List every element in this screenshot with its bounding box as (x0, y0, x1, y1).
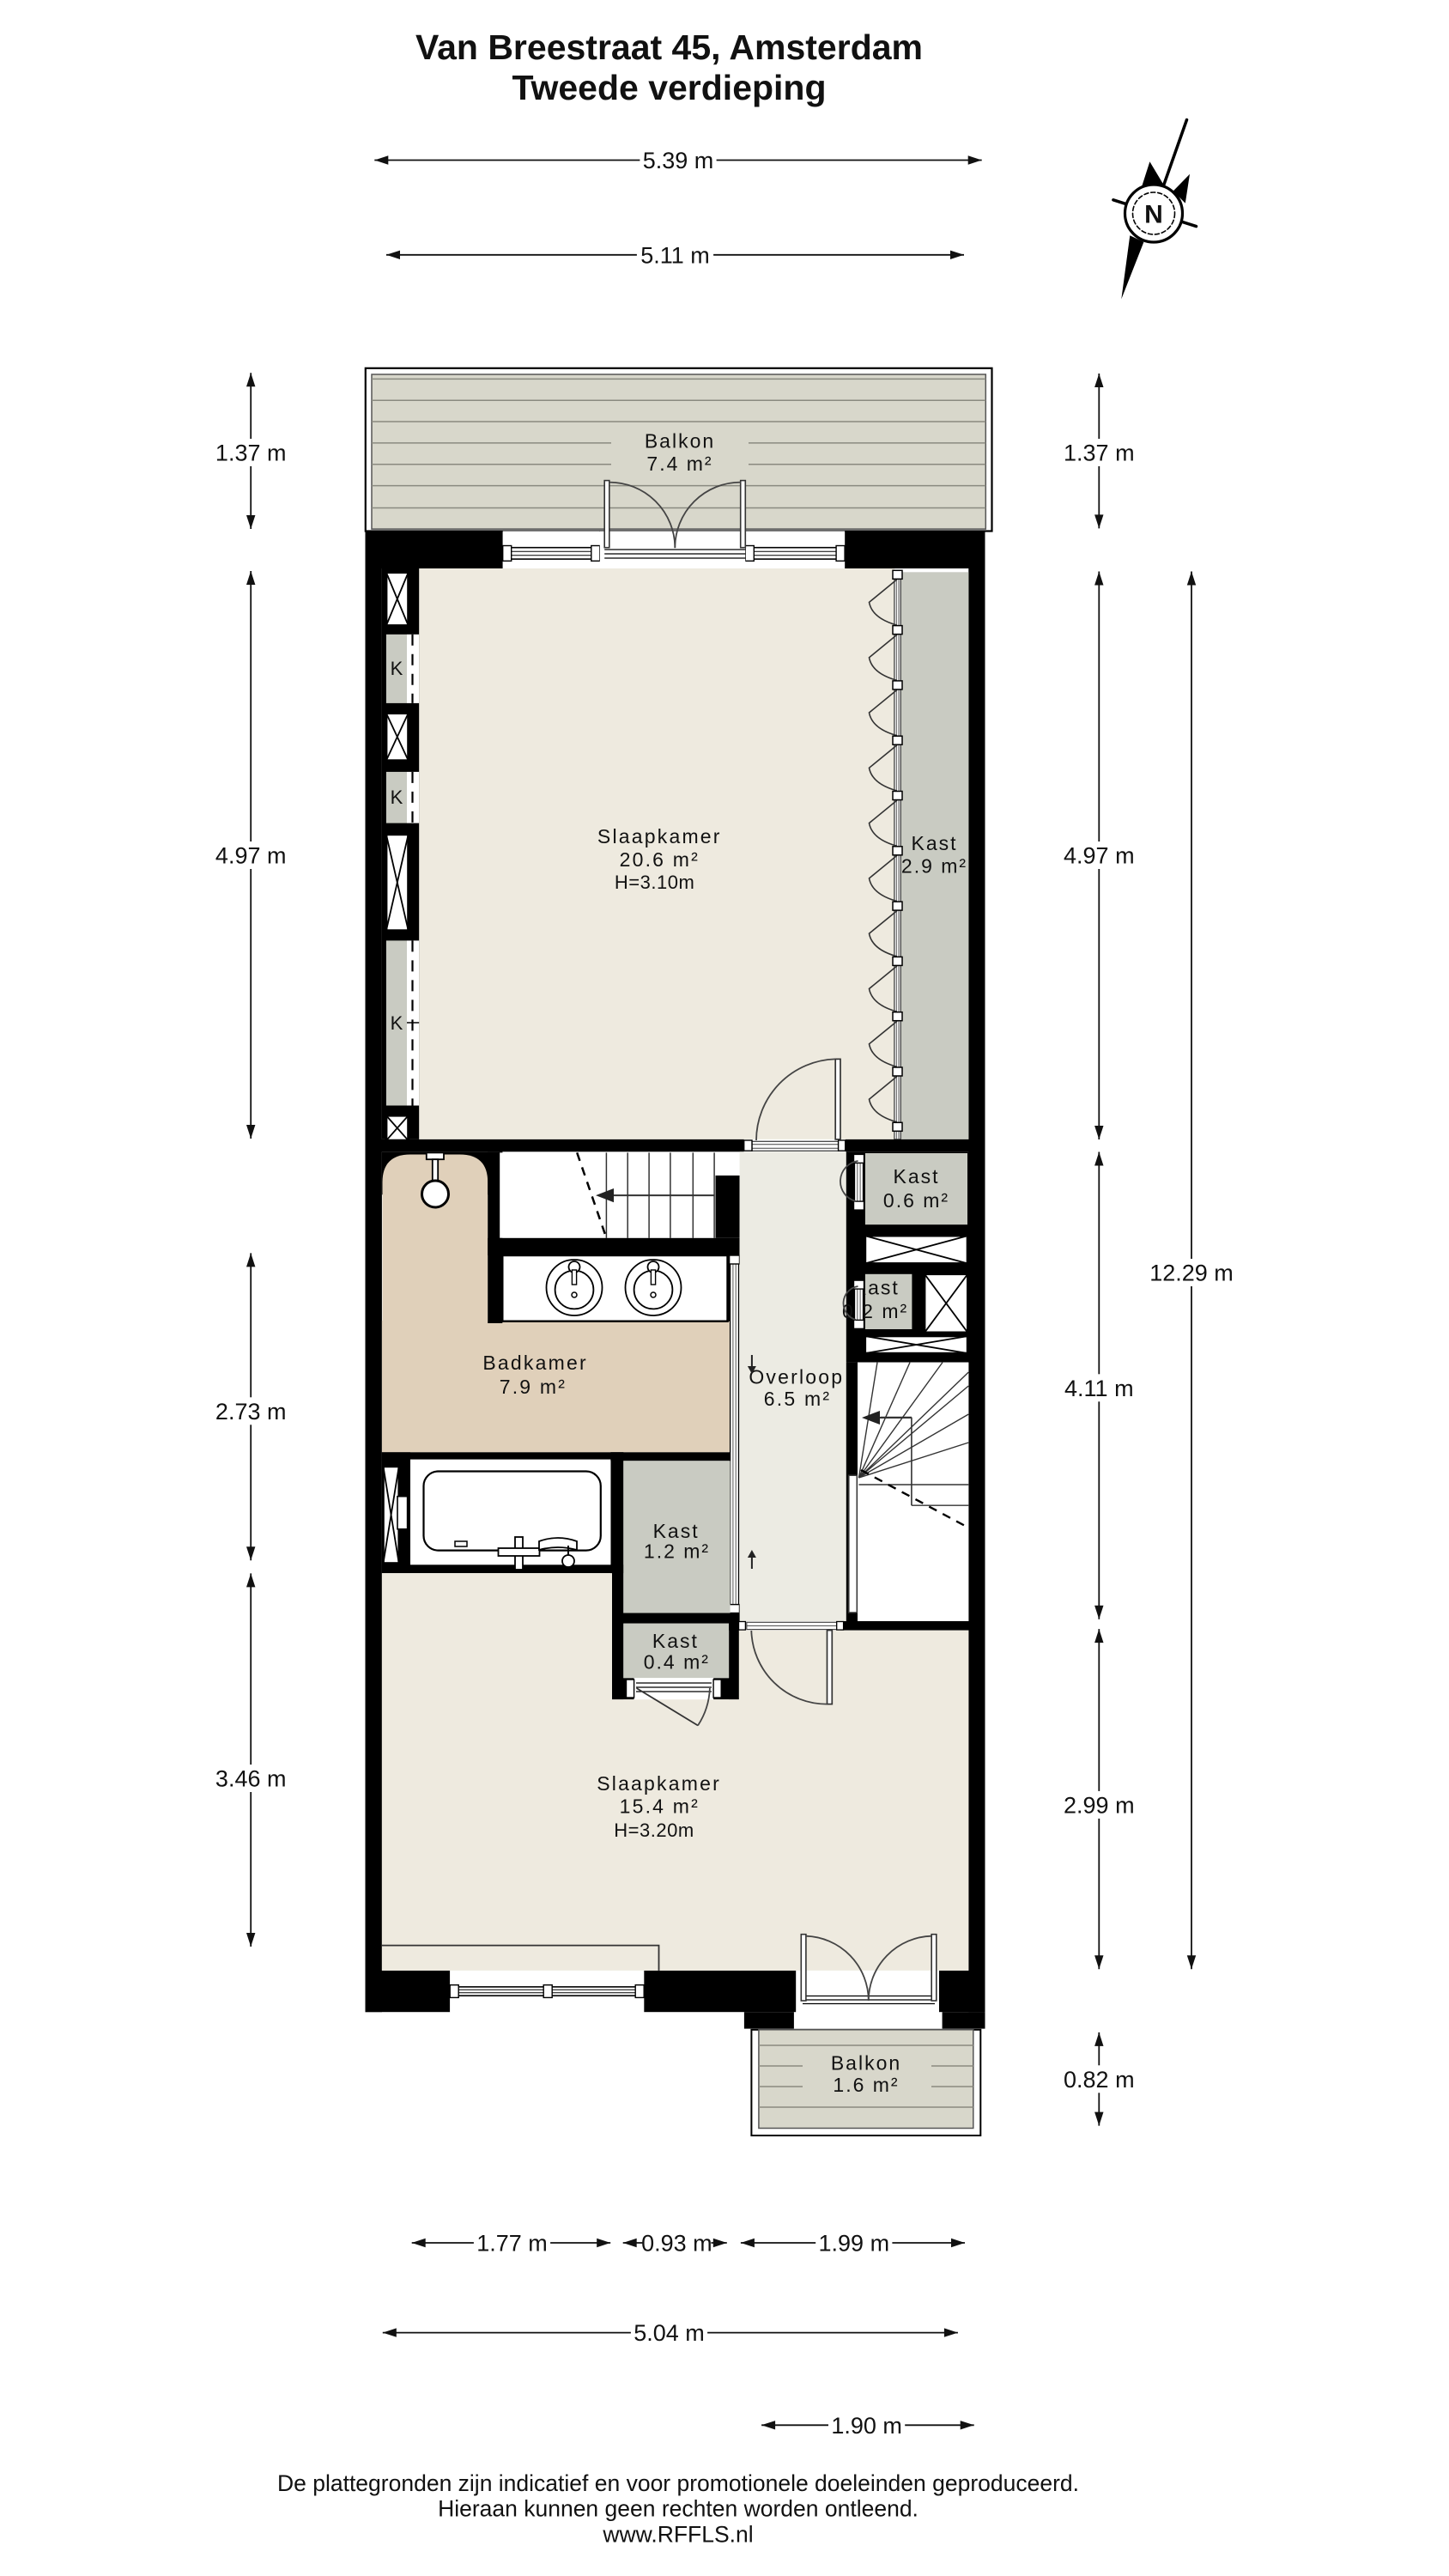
svg-text:0.82 m: 0.82 m (1064, 2067, 1135, 2093)
svg-text:Van Breestraat 45, Amsterdam: Van Breestraat 45, Amsterdam (415, 27, 923, 67)
svg-text:Kast: Kast (911, 832, 957, 854)
svg-text:Balkon: Balkon (645, 430, 715, 453)
svg-text:Tweede verdieping: Tweede verdieping (512, 68, 826, 107)
svg-text:6.5 m²: 6.5 m² (764, 1388, 831, 1410)
svg-text:5.39 m: 5.39 m (643, 148, 714, 173)
svg-text:H=3.10m: H=3.10m (615, 872, 694, 893)
svg-text:N: N (1144, 201, 1163, 229)
svg-text:Balkon: Balkon (831, 2052, 901, 2075)
svg-text:0.6 m²: 0.6 m² (883, 1189, 949, 1212)
svg-text:0.4 m²: 0.4 m² (644, 1651, 710, 1674)
svg-text:Slaapkamer: Slaapkamer (597, 1772, 721, 1795)
svg-text:Kast: Kast (652, 1630, 699, 1652)
svg-text:15.4 m²: 15.4 m² (620, 1795, 700, 1817)
svg-text:1.90 m: 1.90 m (831, 2413, 902, 2439)
svg-text:Slaapkamer: Slaapkamer (597, 825, 722, 848)
svg-text:www.RFFLS.nl: www.RFFLS.nl (602, 2521, 753, 2547)
svg-text:1.2 m²: 1.2 m² (644, 1540, 710, 1563)
svg-text:7.4 m²: 7.4 m² (646, 453, 712, 475)
svg-text:Kast: Kast (893, 1165, 939, 1188)
svg-text:Badkamer: Badkamer (482, 1352, 587, 1374)
svg-text:1.37 m: 1.37 m (1064, 440, 1135, 466)
svg-text:3.46 m: 3.46 m (215, 1766, 287, 1792)
svg-text:4.97 m: 4.97 m (1064, 843, 1135, 869)
svg-text:12.29 m: 12.29 m (1149, 1261, 1234, 1286)
svg-text:2.99 m: 2.99 m (1064, 1792, 1135, 1818)
svg-text:4.11 m: 4.11 m (1064, 1376, 1134, 1401)
svg-text:20.6 m²: 20.6 m² (620, 848, 700, 871)
svg-text:5.11 m: 5.11 m (640, 242, 710, 268)
svg-text:2.9 m²: 2.9 m² (901, 855, 967, 878)
svg-text:2.73 m: 2.73 m (215, 1399, 287, 1425)
svg-text:0.93 m: 0.93 m (641, 2231, 712, 2257)
svg-text:7.9 m²: 7.9 m² (500, 1376, 567, 1398)
svg-text:1.77 m: 1.77 m (476, 2231, 548, 2257)
svg-text:Kast: Kast (653, 1520, 700, 1542)
svg-text:K: K (391, 658, 403, 679)
svg-text:K: K (391, 787, 403, 808)
svg-text:4.97 m: 4.97 m (215, 843, 287, 869)
svg-text:H=3.20m: H=3.20m (614, 1820, 694, 1841)
svg-text:De plattegronden zijn indicati: De plattegronden zijn indicatief en voor… (277, 2470, 1079, 2496)
svg-text:1.99 m: 1.99 m (819, 2231, 890, 2257)
svg-text:Overloop: Overloop (749, 1366, 844, 1388)
svg-text:1.37 m: 1.37 m (215, 440, 287, 466)
svg-text:5.04 m: 5.04 m (634, 2320, 705, 2346)
svg-text:K: K (391, 1012, 403, 1034)
svg-text:1.6 m²: 1.6 m² (833, 2074, 899, 2096)
svg-text:Hieraan kunnen geen rechten wo: Hieraan kunnen geen rechten worden ontle… (438, 2496, 919, 2522)
